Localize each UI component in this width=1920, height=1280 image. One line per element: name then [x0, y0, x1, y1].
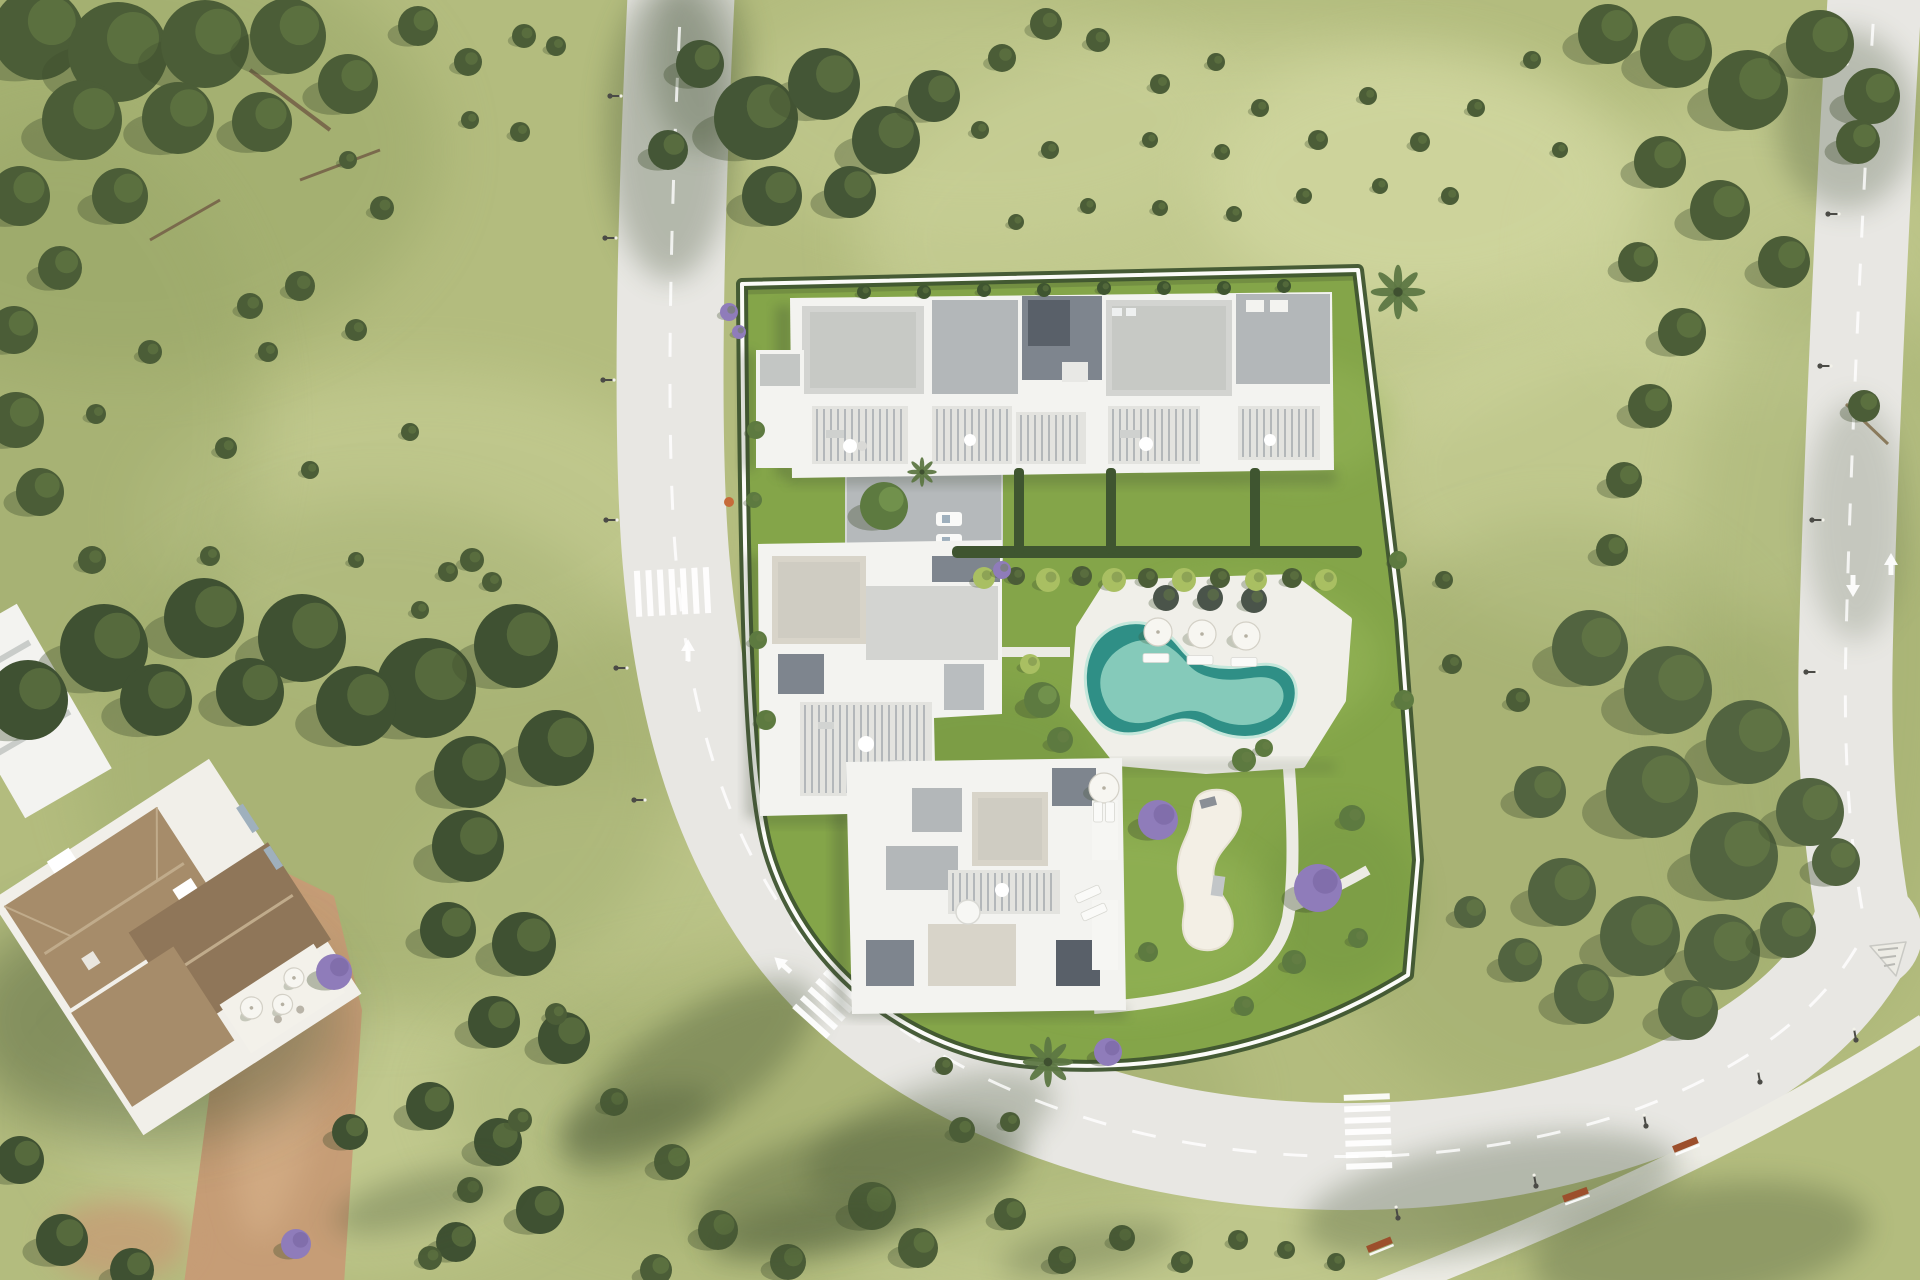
field-bush-highlight	[1284, 1244, 1292, 1252]
aerial-site-render	[0, 0, 1920, 1280]
lavender-shrub-highlight	[1000, 564, 1008, 572]
shrub-row-highlight	[1028, 657, 1037, 666]
west-shrub-highlight	[764, 713, 773, 722]
streetlight-head	[1815, 670, 1818, 673]
west-shrub-highlight	[756, 634, 764, 642]
north-topiary-highlight	[1283, 281, 1289, 287]
pool-parasol-tip	[1156, 630, 1160, 634]
skylight	[1270, 300, 1288, 312]
tree-cluster-midright-highlight	[1515, 942, 1538, 965]
tree-cluster-bottomcenter-highlight	[668, 1148, 687, 1167]
block-b-stairs	[944, 664, 984, 710]
field-bush-highlight	[89, 550, 102, 563]
tree-cluster-topright-highlight	[1778, 241, 1805, 268]
forest-bottomleft-highlight	[195, 586, 237, 628]
streetlight-pole	[600, 377, 605, 382]
field-bush-highlight	[1214, 56, 1222, 64]
field-bush-highlight	[380, 200, 391, 211]
field-bush-highlight	[942, 1060, 950, 1068]
palm-tree-trunk	[1393, 287, 1402, 296]
garden-shrub-highlight	[1402, 693, 1411, 702]
tree-cluster-topcenter-highlight	[695, 45, 720, 70]
field-bush-highlight	[465, 52, 478, 65]
forest-bottomleft-highlight	[517, 918, 550, 951]
shadow	[742, 352, 754, 470]
streetlight-head	[1837, 212, 1840, 215]
tree-cluster-topcenter-highlight	[844, 171, 871, 198]
tree-cluster-midright-highlight	[1534, 771, 1561, 798]
tree-cluster-bottomcenter-highlight	[914, 1232, 935, 1253]
tree-cluster-topleft-highlight	[9, 311, 34, 336]
tree-cluster-topcenter-highlight	[664, 134, 685, 155]
tree-cluster-topleft-highlight	[13, 172, 44, 203]
tree-cluster-topleft-highlight	[170, 89, 207, 126]
forest-bottomleft-highlight	[462, 743, 499, 780]
field-bush-highlight	[266, 345, 275, 354]
garden-shrub-highlight	[1146, 945, 1155, 954]
streetlight-head	[619, 94, 622, 97]
jacaranda-tree-highlight	[1154, 804, 1175, 825]
garden-shrub-highlight	[1292, 954, 1303, 965]
tree-cluster-midright-highlight	[1831, 843, 1856, 868]
streetlight-pole	[1809, 517, 1814, 522]
tree-cluster-topright-highlight	[1813, 17, 1848, 52]
field-bush-highlight	[297, 276, 311, 290]
terrace-chair	[857, 441, 867, 451]
tree-cluster-topcenter-highlight	[928, 75, 955, 102]
forest-bottomleft-highlight	[507, 612, 551, 656]
garden-shrub-highlight	[1242, 999, 1251, 1008]
field-bush-highlight	[418, 604, 426, 612]
tree-cluster-bottomcenter-highlight	[1006, 1201, 1023, 1218]
tree-cluster-midright-highlight	[1782, 908, 1811, 937]
forest-bottomleft-highlight	[346, 1118, 365, 1137]
north-topiary-highlight	[1043, 285, 1049, 291]
forest-bottomleft-highlight	[148, 671, 185, 708]
field-bush-highlight	[1378, 180, 1385, 187]
terrace-table	[843, 439, 857, 453]
shadow	[746, 556, 760, 818]
field-bush-highlight	[148, 344, 159, 355]
field-bush-highlight	[1530, 54, 1538, 62]
field-bush-highlight	[1558, 144, 1565, 151]
tree-cluster-topleft-highlight	[255, 98, 286, 129]
forest-bottomleft-highlight	[19, 668, 61, 710]
north-topiary-highlight	[1223, 283, 1229, 289]
shrub-row-dark-highlight	[1218, 571, 1227, 580]
tree-cluster-topright-highlight	[1654, 141, 1681, 168]
shrub-row-highlight	[1254, 572, 1264, 582]
field-bush-highlight	[1096, 32, 1107, 43]
forest-bottomleft-highlight	[442, 908, 471, 937]
north-topiary-highlight	[1103, 283, 1109, 289]
tree-cluster-topcenter-highlight	[765, 172, 796, 203]
north-topiary-highlight	[863, 287, 869, 293]
palm-tree-trunk	[1044, 1058, 1053, 1067]
tree-cluster-bottomcenter-highlight	[652, 1257, 669, 1274]
tree-cluster-midright-highlight	[1555, 865, 1590, 900]
pool-parasol-tip	[1102, 786, 1106, 790]
shrub-row-highlight	[1182, 572, 1193, 583]
tree-cluster-topright-highlight	[1601, 10, 1632, 41]
terrace-table	[1264, 434, 1276, 446]
field-bush-highlight	[346, 154, 354, 162]
ac-unit	[1126, 308, 1136, 316]
terrace-table	[858, 736, 874, 752]
aerial-view-canvas	[0, 0, 1920, 1280]
terrace-table	[964, 434, 976, 446]
shrub-row-highlight	[1324, 572, 1334, 582]
skylight	[1246, 300, 1264, 312]
block-b-roof-dark	[778, 654, 824, 694]
terrace-sofa	[1120, 430, 1140, 438]
streetlight-head	[1829, 364, 1832, 367]
tree-cluster-topright-highlight	[1677, 313, 1702, 338]
west-shrub-highlight	[754, 424, 762, 432]
streetlight-pole	[1817, 363, 1822, 368]
block-a-roof-texture	[810, 312, 916, 388]
field-bush-highlight	[1220, 146, 1227, 153]
block-b-roof-texture	[778, 562, 860, 638]
hedge-divider	[1106, 468, 1116, 554]
block-c-roof	[928, 924, 1016, 986]
forest-bottomleft-highlight	[56, 1219, 83, 1246]
garden-shrub-highlight	[1242, 752, 1253, 763]
tree-cluster-topright-highlight	[1853, 124, 1876, 147]
field-bush-highlight	[94, 407, 103, 416]
field-bush-highlight	[1366, 90, 1374, 98]
terrace-table	[1139, 437, 1153, 451]
field-bush-highlight	[490, 575, 499, 584]
streetlight-pole	[607, 93, 612, 98]
forest-bottomleft-highlight	[548, 718, 588, 758]
forest-bottomleft-highlight	[460, 817, 497, 854]
lavender-shrub-highlight	[738, 327, 744, 333]
pool-parasol-tip	[1200, 632, 1204, 636]
tree-cluster-topright-highlight	[1866, 74, 1895, 103]
tree-cluster-midright-highlight	[1466, 899, 1483, 916]
sun-lounger	[1231, 658, 1257, 667]
field-bush-highlight	[518, 1112, 529, 1123]
garden-shrub-highlight	[1349, 809, 1361, 821]
streetlight-pole	[602, 235, 607, 240]
field-bush-highlight	[522, 28, 533, 39]
hedge-divider	[1250, 468, 1260, 554]
garden-shrub-highlight	[1262, 742, 1270, 750]
streetlight-pole	[631, 797, 636, 802]
field-bush-highlight	[428, 1250, 439, 1261]
forest-bottomleft-highlight	[243, 665, 278, 700]
tree-cluster-topright-highlight	[1713, 186, 1744, 217]
tree-cluster-topright-highlight	[1634, 246, 1655, 267]
sun-lounger	[1143, 654, 1169, 663]
field-bush-highlight	[1008, 1115, 1017, 1124]
streetlight-head	[1821, 518, 1824, 521]
north-topiary-highlight	[983, 285, 989, 291]
field-bush-highlight	[554, 1006, 564, 1016]
roof-box	[1062, 362, 1088, 382]
shrub-row-highlight	[982, 570, 992, 580]
shrub-row-dark-highlight	[1014, 570, 1022, 578]
tree-cluster-topleft-highlight	[35, 473, 60, 498]
garden-shrub-highlight	[1356, 931, 1365, 940]
forest-bottomleft-highlight	[292, 603, 338, 649]
field-bush-highlight	[1448, 190, 1456, 198]
sun-lounger	[1187, 656, 1213, 665]
tree-cluster-midright-highlight	[1658, 655, 1704, 701]
tree-cluster-midright-highlight	[1739, 708, 1783, 752]
tree-cluster-topleft-highlight	[55, 250, 78, 273]
tree-cluster-topright-highlight	[1608, 537, 1625, 554]
streetlight-pole	[1825, 211, 1830, 216]
sun-lounger	[1106, 802, 1115, 822]
tree-cluster-midright-highlight	[1631, 904, 1673, 946]
field-bush-highlight	[1158, 202, 1165, 209]
field-bush-highlight	[1232, 208, 1239, 215]
forest-bottomleft-highlight	[15, 1141, 40, 1166]
tree-cluster-topleft-highlight	[73, 88, 115, 130]
hydrant	[724, 497, 734, 507]
field-bush-highlight	[408, 426, 416, 434]
tree-cluster-topleft-highlight	[114, 174, 143, 203]
shrub-row-dark-highlight	[1146, 571, 1155, 580]
field-bush-highlight	[1450, 657, 1459, 666]
annex-roof	[760, 354, 800, 386]
field-bush-highlight	[518, 125, 527, 134]
tree-cluster-topright-highlight	[1860, 393, 1877, 410]
tree-cluster-topleft-highlight	[341, 60, 372, 91]
tree-cluster-topright-highlight	[1620, 466, 1639, 485]
block-a-roof-texture	[1112, 306, 1226, 390]
streetlight-pole	[603, 517, 608, 522]
terrace-table	[995, 883, 1009, 897]
field-bush-highlight	[1418, 135, 1427, 144]
tree-cluster-topright-highlight	[1668, 23, 1705, 60]
forest-bottomleft-highlight	[535, 1191, 560, 1216]
field-bush-highlight	[224, 440, 234, 450]
field-bush-highlight	[446, 565, 455, 574]
tree-cluster-midright-highlight	[1577, 970, 1608, 1001]
tree-cluster-topleft-highlight	[10, 398, 39, 427]
forest-bottomleft-highlight	[425, 1087, 450, 1112]
streetlight-head	[615, 518, 618, 521]
palm-tree-trunk	[919, 469, 924, 474]
tree-cluster-topcenter-highlight	[816, 55, 853, 92]
field-bush-highlight	[1048, 144, 1056, 152]
pool-parasol-tip	[1244, 634, 1248, 638]
tree-cluster-midright-highlight	[1803, 785, 1838, 820]
field-bush-highlight	[354, 554, 361, 561]
streetlight-head	[612, 378, 615, 381]
terrace-sofa	[818, 722, 834, 729]
field-bush-highlight	[208, 549, 217, 558]
field-bush-highlight	[978, 124, 986, 132]
field-bush-highlight	[247, 297, 259, 309]
field-bush-highlight	[1442, 574, 1450, 582]
block-c-roof-dark	[866, 940, 914, 986]
shrub-row-highlight	[1112, 572, 1123, 583]
forest-bottomleft-highlight	[94, 613, 140, 659]
field-bush-highlight	[1043, 13, 1057, 27]
pergola-base	[1016, 412, 1086, 464]
terrace-sofa	[826, 430, 844, 438]
field-bush-highlight	[1158, 77, 1167, 86]
block-c-roof-texture	[978, 798, 1042, 860]
ac-unit	[1112, 308, 1122, 316]
jacaranda-tree-highlight	[1313, 869, 1338, 894]
shrub-row-dark-highlight	[1290, 571, 1299, 580]
planter-tree-highlight	[1207, 589, 1219, 601]
sun-lounger	[1094, 802, 1103, 822]
forest-bottomleft-highlight	[127, 1252, 150, 1275]
field-bush-highlight	[1302, 190, 1309, 197]
streetlight-head	[614, 236, 617, 239]
west-shrub-highlight	[752, 494, 759, 501]
streetlight-pole	[613, 665, 618, 670]
field-bush-highlight	[470, 552, 481, 563]
garden-shrub-highlight	[1396, 554, 1404, 562]
field-bush-highlight	[1086, 200, 1093, 207]
north-topiary-highlight	[923, 287, 929, 293]
field-bush-highlight	[308, 464, 316, 472]
block-a-roof	[932, 300, 1018, 394]
shrub-row-highlight	[1046, 572, 1057, 583]
field-bush-highlight	[959, 1121, 971, 1133]
field-bush-highlight	[1316, 133, 1325, 142]
streetlight-head	[625, 666, 628, 669]
shrub-row-dark-highlight	[1080, 569, 1089, 578]
forest-bottomleft-highlight	[347, 674, 389, 716]
lavender-shrub-highlight	[727, 306, 735, 314]
garden-shrub-highlight	[1057, 731, 1069, 743]
field-bush-highlight	[1258, 102, 1266, 110]
block-a-roof-charcoal	[1028, 300, 1070, 346]
courtyard-tree-highlight	[879, 487, 904, 512]
streetlight-pole	[1803, 669, 1808, 674]
tree-cluster-midright-highlight	[1582, 618, 1622, 658]
tree-cluster-topright-highlight	[1645, 388, 1668, 411]
field-bush-highlight	[468, 114, 476, 122]
jacaranda-tree-highlight	[293, 1232, 309, 1248]
tree-cluster-topleft-highlight	[414, 10, 435, 31]
forest-bottomleft-highlight	[452, 1226, 473, 1247]
north-topiary-highlight	[1163, 283, 1169, 289]
tree-cluster-midright-highlight	[1681, 986, 1712, 1017]
forest-bottomleft-highlight	[488, 1001, 515, 1028]
planter-tree-highlight	[1251, 591, 1263, 603]
field-bush-highlight	[1014, 216, 1021, 223]
field-bush-highlight	[1148, 134, 1155, 141]
field-bush-highlight	[1474, 102, 1482, 110]
field-bush-highlight	[1516, 692, 1527, 703]
car-glass	[942, 515, 950, 523]
hedge-divider	[1014, 468, 1024, 554]
field-bush-highlight	[554, 39, 563, 48]
field-bush-highlight	[1236, 1233, 1245, 1242]
streetlight-head	[643, 798, 646, 801]
planter-tree-highlight	[1163, 589, 1175, 601]
jacaranda-tree-highlight	[330, 958, 349, 977]
field-bush-highlight	[1334, 1256, 1342, 1264]
block-c-roof	[912, 788, 962, 832]
tree-cluster-midright-highlight	[1642, 755, 1690, 803]
block-b-roof	[866, 586, 998, 660]
tree-cluster-topleft-highlight	[280, 6, 320, 46]
block-c-roof	[886, 846, 958, 890]
field-bush-highlight	[354, 322, 364, 332]
field-bush-highlight	[1180, 1254, 1190, 1264]
hedge-band	[952, 546, 1362, 558]
round-table	[956, 900, 980, 924]
field-bush-highlight	[999, 48, 1012, 61]
jacaranda-tree-highlight	[1105, 1041, 1120, 1056]
shadow	[1085, 762, 1335, 772]
courtyard-tree-highlight	[1038, 686, 1057, 705]
